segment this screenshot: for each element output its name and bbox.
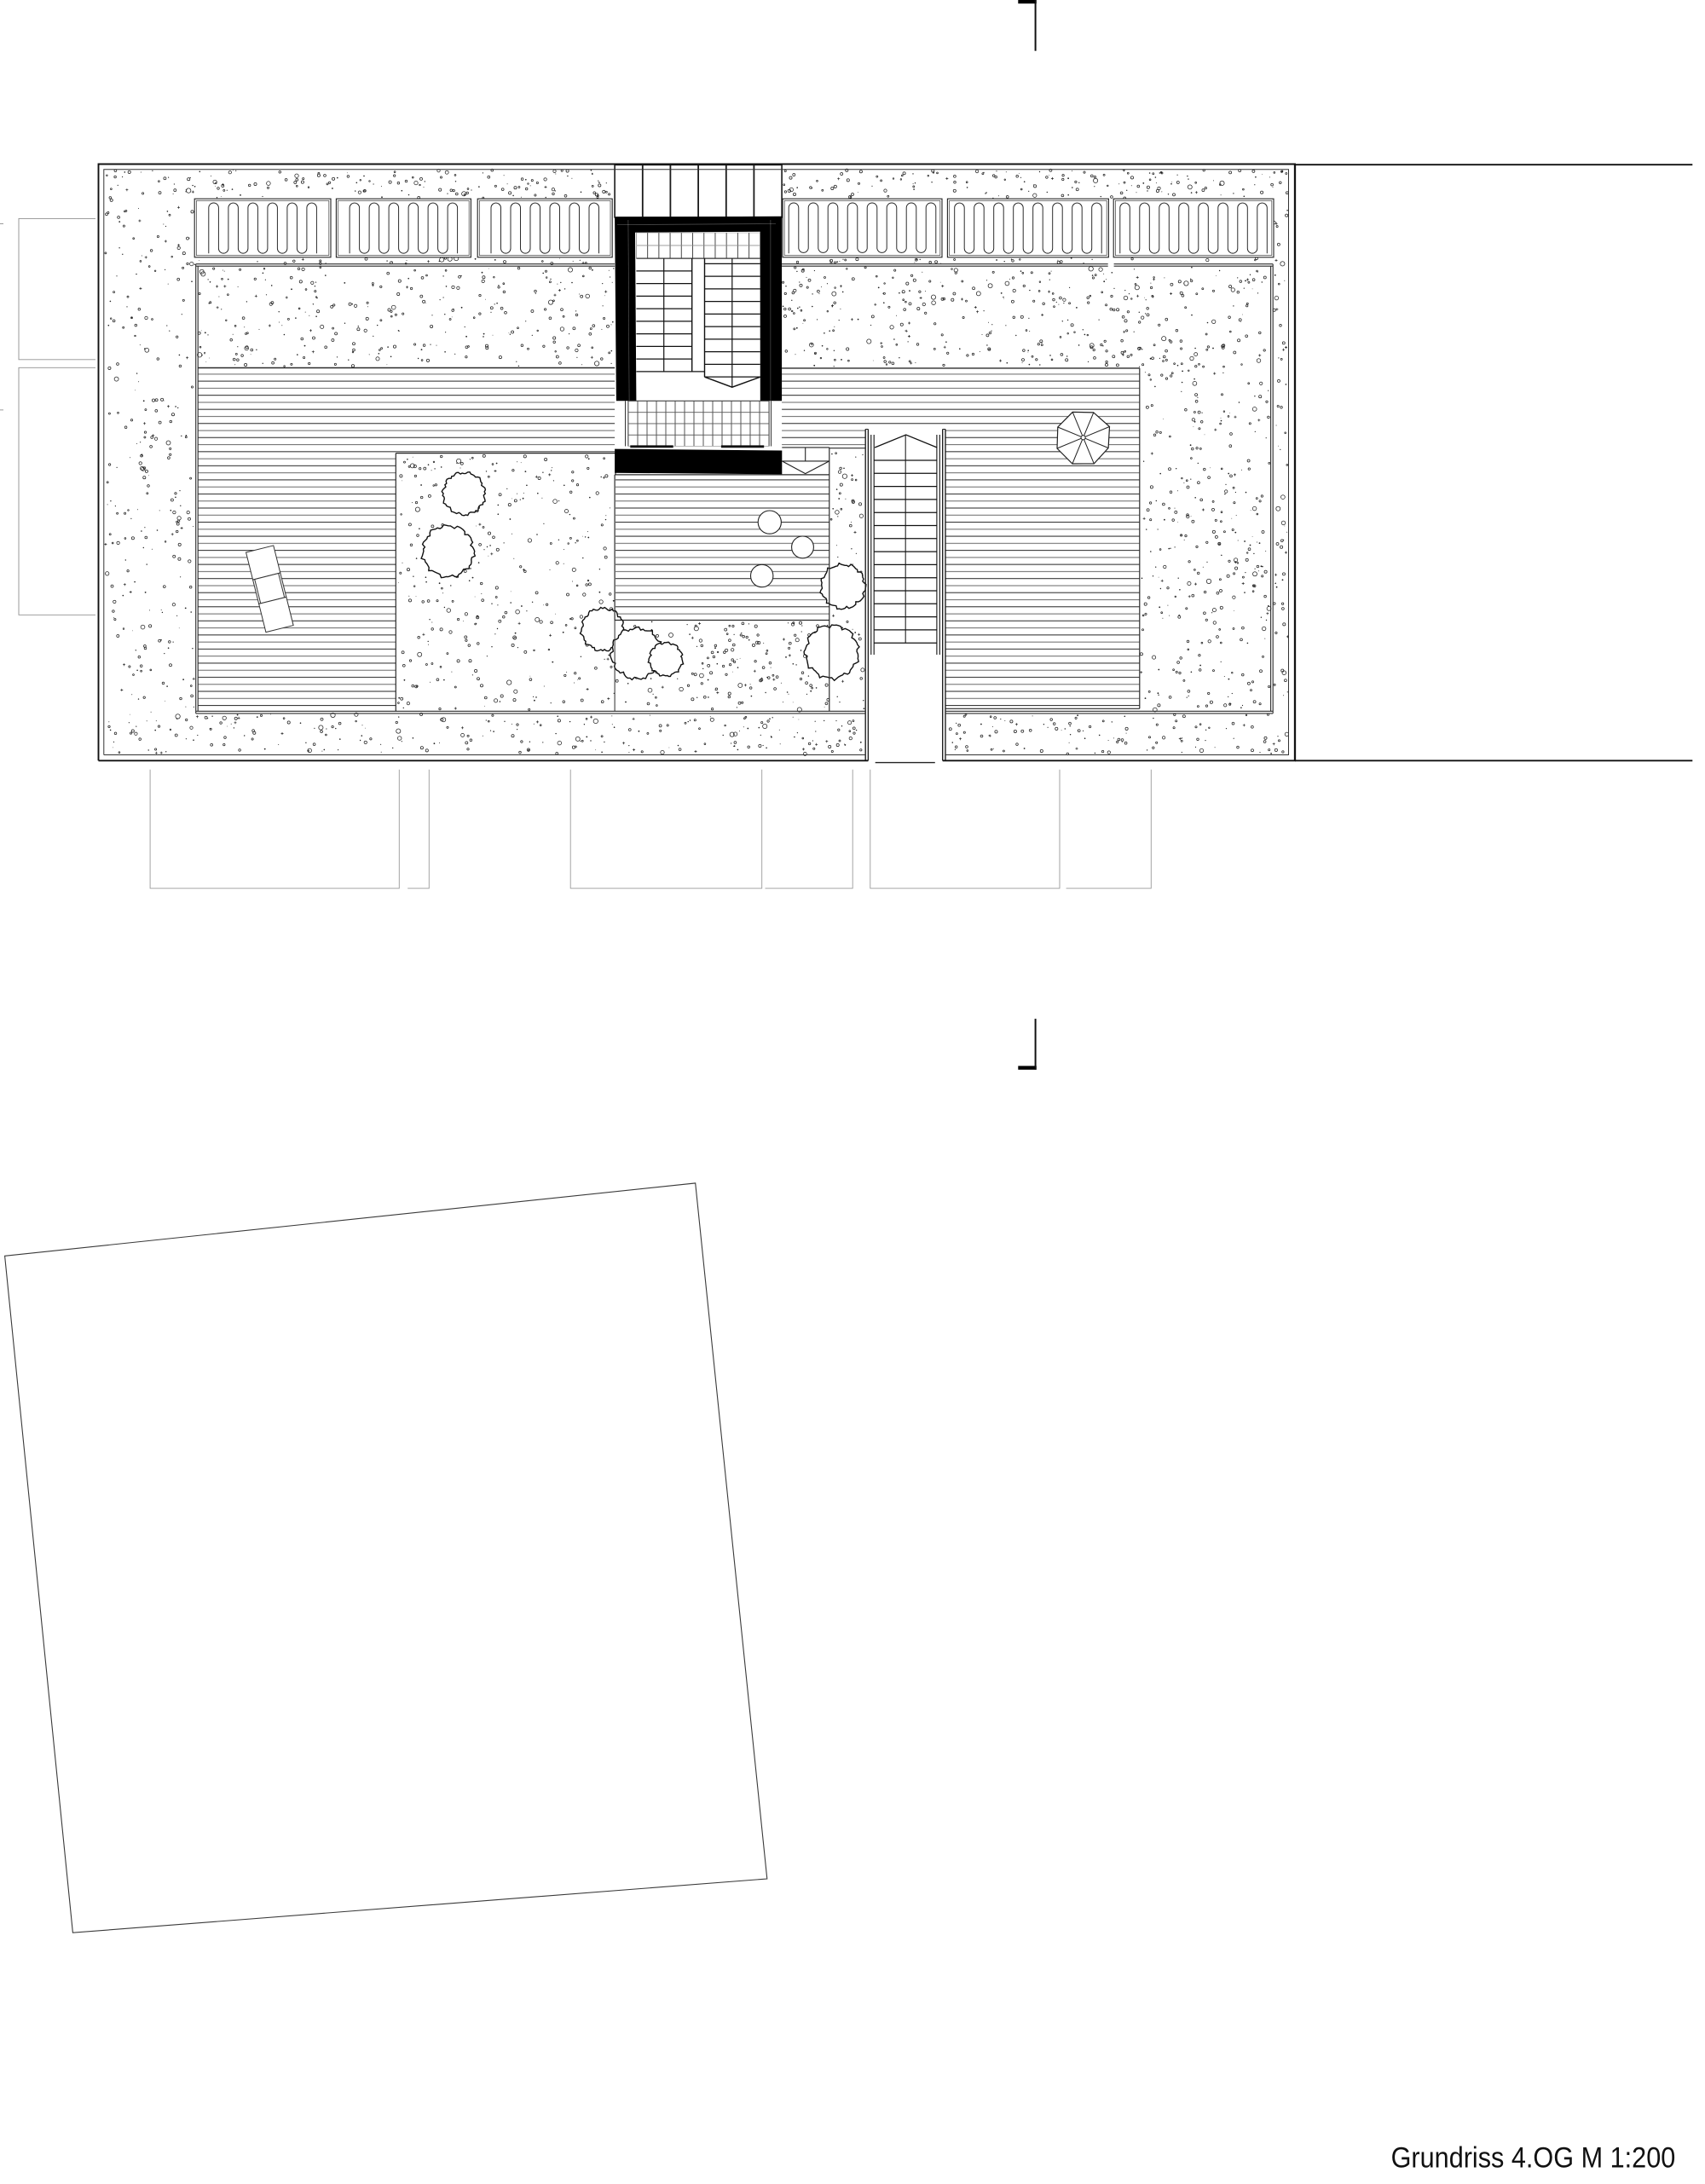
svg-text:Grundriss 4.OG M 1:200: Grundriss 4.OG M 1:200: [1391, 2142, 1676, 2175]
